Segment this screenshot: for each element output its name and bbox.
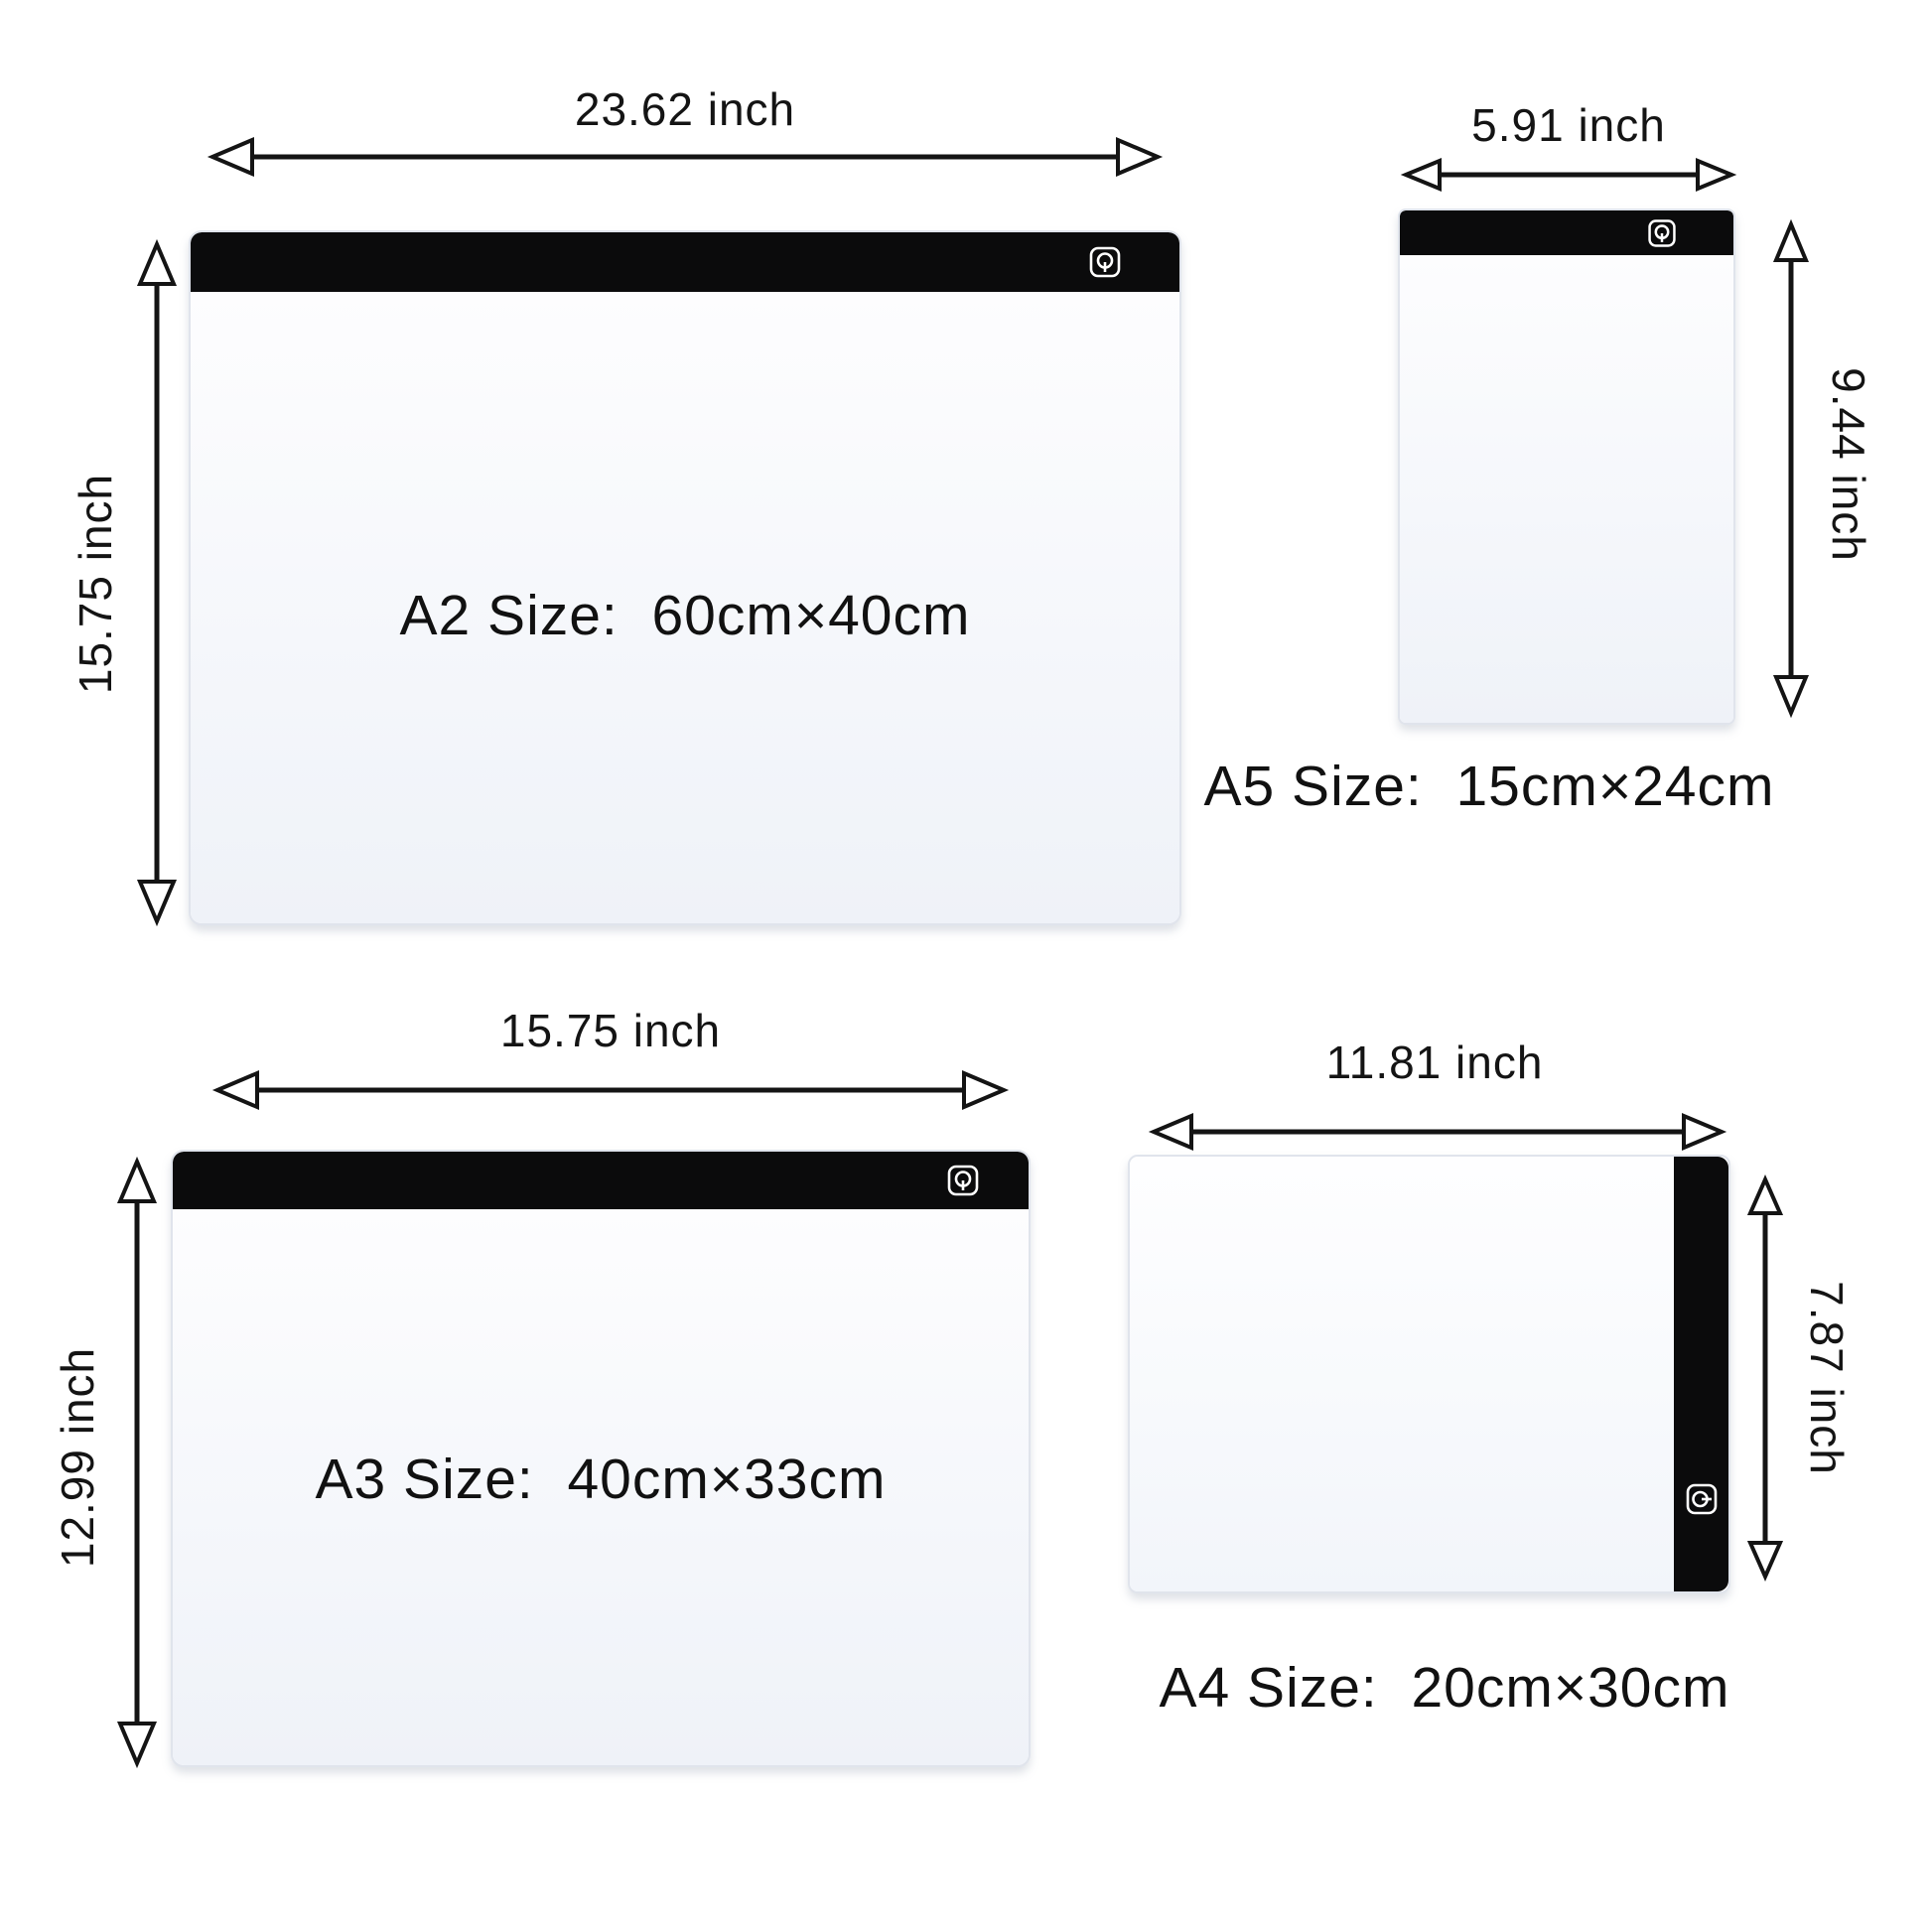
size-diagram: 23.62 inch A2 Size: 60cm×40cm 15.75 inch… (0, 0, 1932, 1932)
a4-pad (1128, 1155, 1730, 1593)
power-icon (1087, 244, 1123, 280)
a4-height-label: 7.87 inch (1800, 1281, 1854, 1475)
a3-height-label: 12.99 inch (51, 1347, 104, 1568)
a2-height-arrow (137, 240, 177, 925)
power-icon (1684, 1481, 1720, 1517)
a4-height-arrow (1745, 1175, 1785, 1581)
a3-size-label: A3 Size: 40cm×33cm (315, 1447, 886, 1512)
a5-pad (1398, 208, 1735, 725)
a3-frame-bar (173, 1152, 1029, 1209)
a5-frame-bar (1400, 210, 1733, 255)
a4-width-arrow (1150, 1112, 1725, 1152)
a2-frame-bar (191, 232, 1179, 292)
a3-width-arrow (213, 1070, 1008, 1110)
power-icon (1646, 217, 1678, 249)
a5-height-arrow (1771, 220, 1811, 717)
a3-width-label: 15.75 inch (500, 1004, 721, 1057)
a5-size-label: A5 Size: 15cm×24cm (1203, 754, 1774, 819)
a2-pad (189, 230, 1181, 925)
a2-size-label: A2 Size: 60cm×40cm (399, 583, 970, 648)
a4-size-label: A4 Size: 20cm×30cm (1159, 1655, 1729, 1721)
a3-height-arrow (117, 1158, 157, 1767)
a4-frame-bar (1674, 1157, 1728, 1591)
a5-pad-surface (1400, 255, 1733, 723)
a4-pad-surface (1130, 1157, 1674, 1591)
a2-height-label: 15.75 inch (69, 474, 122, 694)
a2-width-arrow (208, 137, 1162, 177)
a2-width-label: 23.62 inch (575, 82, 795, 136)
power-icon (945, 1163, 981, 1198)
a4-width-label: 11.81 inch (1326, 1035, 1544, 1089)
a5-width-label: 5.91 inch (1471, 98, 1666, 152)
a5-width-arrow (1402, 155, 1735, 195)
a5-height-label: 9.44 inch (1822, 367, 1875, 562)
